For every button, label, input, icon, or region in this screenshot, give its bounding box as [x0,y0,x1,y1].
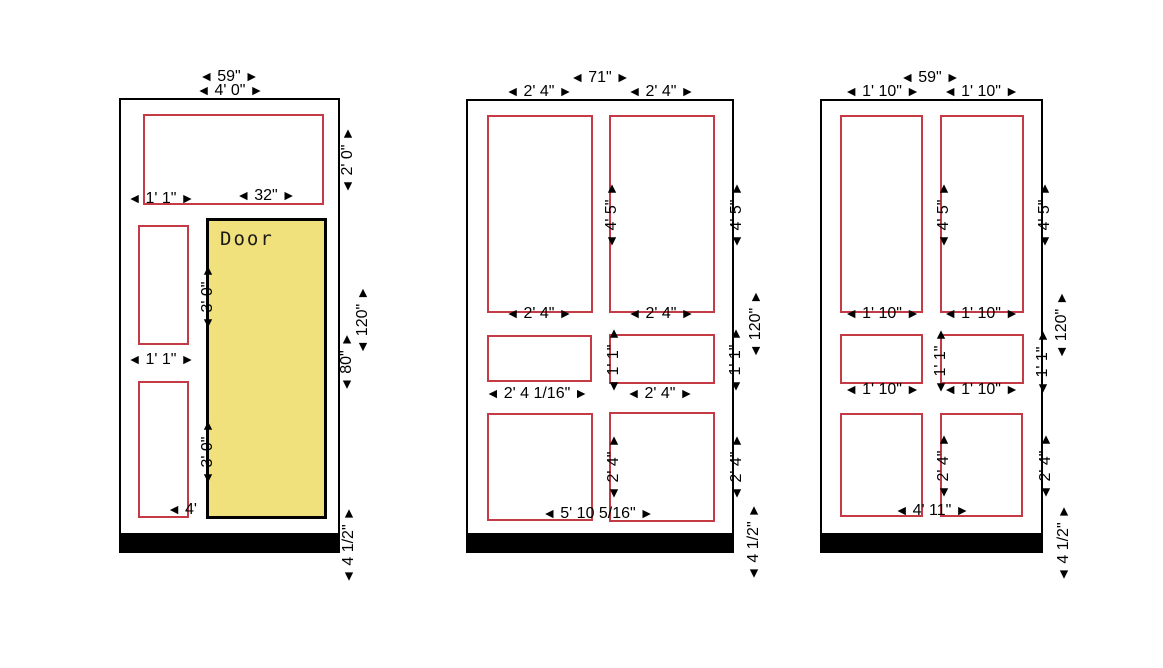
dim-right-top-right-width: ◄1' 10"► [943,84,1019,100]
arrow-down-icon: ◄ [339,179,355,193]
dim-right-mid-height-right: ◄1' 1"► [1035,329,1051,396]
arrow-down-icon: ◄ [747,344,763,358]
right-wall-opening-tall-right [940,115,1024,313]
elevation-drawing-canvas: Door ◄59"► ◄4' 0"► ◄1' 1"► ◄32"► ◄1' 1"►… [0,0,1163,668]
arrow-down-icon: ◄ [1037,485,1053,499]
arrow-up-icon: ► [1053,291,1069,305]
dim-top-opening-width: ◄32"► [236,188,295,204]
dim-middle-bottom-span-width: ◄5' 10 5/16"► [542,506,653,522]
arrow-up-icon: ► [339,127,355,141]
dim-middle-tall-height-right: ◄4' 5"► [729,182,745,249]
arrow-up-icon: ► [932,328,948,342]
arrow-right-icon: ► [906,305,920,321]
dim-middle-baseboard-height: ◄4 1/2"► [746,504,762,581]
middle-wall-opening-mid-right [609,334,715,384]
arrow-right-icon: ► [680,83,694,99]
arrow-down-icon: ◄ [727,379,743,393]
left-wall-baseboard [119,533,340,553]
arrow-left-icon: ◄ [167,501,181,517]
arrow-right-icon: ► [906,83,920,99]
arrow-left-icon: ◄ [943,83,957,99]
arrow-left-icon: ◄ [628,305,642,321]
arrow-up-icon: ► [603,182,619,196]
dim-middle-mid-height-inner: ◄1' 1"► [606,327,622,394]
arrow-left-icon: ◄ [506,305,520,321]
dim-right-bottom-height-right: ◄2' 4"► [1038,433,1054,500]
arrow-down-icon: ◄ [935,485,951,499]
dim-right-bottom-height-inner: ◄2' 4"► [936,433,952,500]
dim-bottom-opening-width: ◄4' [167,502,201,518]
dim-right-mid-right-width: ◄1' 10"► [943,382,1019,398]
arrow-left-icon: ◄ [506,83,520,99]
arrow-down-icon: ◄ [1034,381,1050,395]
arrow-up-icon: ► [605,434,621,448]
right-wall-opening-tall-left [840,115,923,313]
middle-wall-opening-mid-left [487,335,592,382]
middle-wall-opening-tall-right [609,115,715,313]
dim-middle-tall-left-bottom-width: ◄2' 4"► [506,306,573,322]
arrow-up-icon: ► [728,182,744,196]
arrow-up-icon: ► [935,433,951,447]
dim-left-wall-height: ◄120"► [355,286,371,354]
arrow-up-icon: ► [747,290,763,304]
dim-middle-tall-height-inner: ◄4' 5"► [604,182,620,249]
arrow-right-icon: ► [574,385,588,401]
door-label: Door [220,228,274,250]
arrow-down-icon: ◄ [728,234,744,248]
dim-right-tall-left-bottom-width: ◄1' 10"► [844,306,920,322]
dim-right-baseboard-height: ◄4 1/2"► [1056,505,1072,582]
arrow-right-icon: ► [1005,381,1019,397]
dim-right-mid-height-inner: ◄1' 1"► [933,328,949,395]
arrow-left-icon: ◄ [943,305,957,321]
dim-top-opening-height: ◄2' 0"► [340,127,356,194]
arrow-up-icon: ► [1037,433,1053,447]
arrow-left-icon: ◄ [844,83,858,99]
right-wall-opening-bottom-left [840,413,923,517]
arrow-right-icon: ► [558,305,572,321]
arrow-up-icon: ► [1055,505,1071,519]
arrow-up-icon: ► [354,286,370,300]
dim-middle-mid-height-right: ◄1' 1"► [728,327,744,394]
dim-middle-opening-width: ◄1' 1"► [128,352,195,368]
arrow-up-icon: ► [935,182,951,196]
arrow-right-icon: ► [1005,305,1019,321]
arrow-up-icon: ► [1034,329,1050,343]
dim-door-lower-height: ◄3' 0"► [200,419,216,486]
arrow-left-icon: ◄ [844,381,858,397]
dim-left-baseboard-height: ◄4 1/2"► [341,507,357,584]
right-wall-baseboard [820,533,1043,553]
arrow-down-icon: ◄ [199,471,215,485]
dim-middle-wall-width-inches: ◄71"► [570,70,629,86]
arrow-right-icon: ► [680,305,694,321]
arrow-right-icon: ► [558,83,572,99]
dim-right-tall-height-right: ◄4' 5"► [1037,182,1053,249]
left-wall-opening-middle [138,225,189,345]
arrow-left-icon: ◄ [627,385,641,401]
arrow-down-icon: ◄ [932,380,948,394]
dim-door-upper-height: ◄3' 0"► [200,264,216,331]
middle-wall-baseboard [466,533,734,553]
arrow-down-icon: ◄ [1055,568,1071,582]
right-wall-opening-mid-left [840,334,923,384]
arrow-up-icon: ► [338,332,354,346]
arrow-right-icon: ► [955,502,969,518]
arrow-right-icon: ► [679,385,693,401]
dim-door-height: ◄80"► [339,332,355,391]
arrow-right-icon: ► [180,190,194,206]
arrow-up-icon: ► [1036,182,1052,196]
arrow-down-icon: ◄ [354,340,370,354]
arrow-up-icon: ► [199,264,215,278]
dim-right-tall-height-inner: ◄4' 5"► [936,182,952,249]
arrow-left-icon: ◄ [895,502,909,518]
dim-left-wall-width-feet: ◄4' 0"► [197,83,264,99]
dim-right-tall-right-bottom-width: ◄1' 10"► [943,306,1019,322]
arrow-up-icon: ► [727,327,743,341]
arrow-up-icon: ► [340,507,356,521]
dim-right-bottom-span-width: ◄4' 11"► [895,503,969,519]
right-wall-opening-mid-right [940,334,1024,384]
arrow-left-icon: ◄ [844,305,858,321]
arrow-down-icon: ◄ [340,570,356,584]
arrow-down-icon: ◄ [1053,345,1069,359]
dim-middle-tall-right-bottom-width: ◄2' 4"► [628,306,695,322]
arrow-down-icon: ◄ [605,486,621,500]
arrow-right-icon: ► [180,351,194,367]
arrow-down-icon: ◄ [935,234,951,248]
arrow-down-icon: ◄ [605,379,621,393]
arrow-down-icon: ◄ [1036,234,1052,248]
door: Door [206,218,327,519]
arrow-right-icon: ► [249,82,263,98]
dim-right-wall-height: ◄120"► [1054,291,1070,359]
arrow-down-icon: ◄ [728,486,744,500]
arrow-left-icon: ◄ [570,69,584,85]
arrow-left-icon: ◄ [128,351,142,367]
arrow-left-icon: ◄ [542,505,556,521]
dim-middle-bottom-height-right: ◄2' 4"► [729,434,745,501]
arrow-right-icon: ► [906,381,920,397]
arrow-down-icon: ◄ [603,234,619,248]
right-wall-opening-bottom-right [940,413,1023,517]
left-wall-opening-bottom [138,381,189,518]
dim-middle-bottom-height-inner: ◄2' 4"► [606,434,622,501]
dim-middle-top-left-width: ◄2' 4"► [506,84,573,100]
arrow-left-icon: ◄ [197,82,211,98]
dim-middle-mid-left-width: ◄2' 4 1/16"► [486,386,588,402]
arrow-down-icon: ◄ [745,567,761,581]
arrow-up-icon: ► [199,419,215,433]
dim-middle-wall-height: ◄120"► [748,290,764,358]
arrow-left-icon: ◄ [236,187,250,203]
arrow-left-icon: ◄ [628,83,642,99]
arrow-down-icon: ◄ [199,316,215,330]
arrow-down-icon: ◄ [338,378,354,392]
arrow-right-icon: ► [640,505,654,521]
arrow-left-icon: ◄ [486,385,500,401]
arrow-up-icon: ► [745,504,761,518]
arrow-right-icon: ► [1005,83,1019,99]
dim-middle-top-right-width: ◄2' 4"► [628,84,695,100]
dim-left-opening-offset: ◄1' 1"► [128,191,195,207]
dim-middle-mid-right-width: ◄2' 4"► [627,386,694,402]
arrow-up-icon: ► [605,327,621,341]
dim-right-top-left-width: ◄1' 10"► [844,84,920,100]
dim-right-mid-left-width: ◄1' 10"► [844,382,920,398]
arrow-left-icon: ◄ [128,190,142,206]
arrow-right-icon: ► [282,187,296,203]
arrow-up-icon: ► [728,434,744,448]
middle-wall-opening-tall-left [487,115,593,313]
